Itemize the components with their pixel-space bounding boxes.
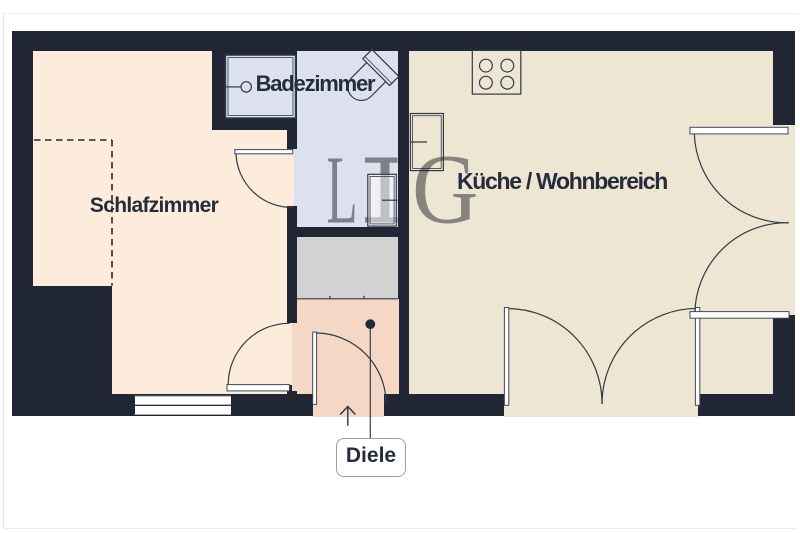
svg-text:L: L [327,135,358,244]
